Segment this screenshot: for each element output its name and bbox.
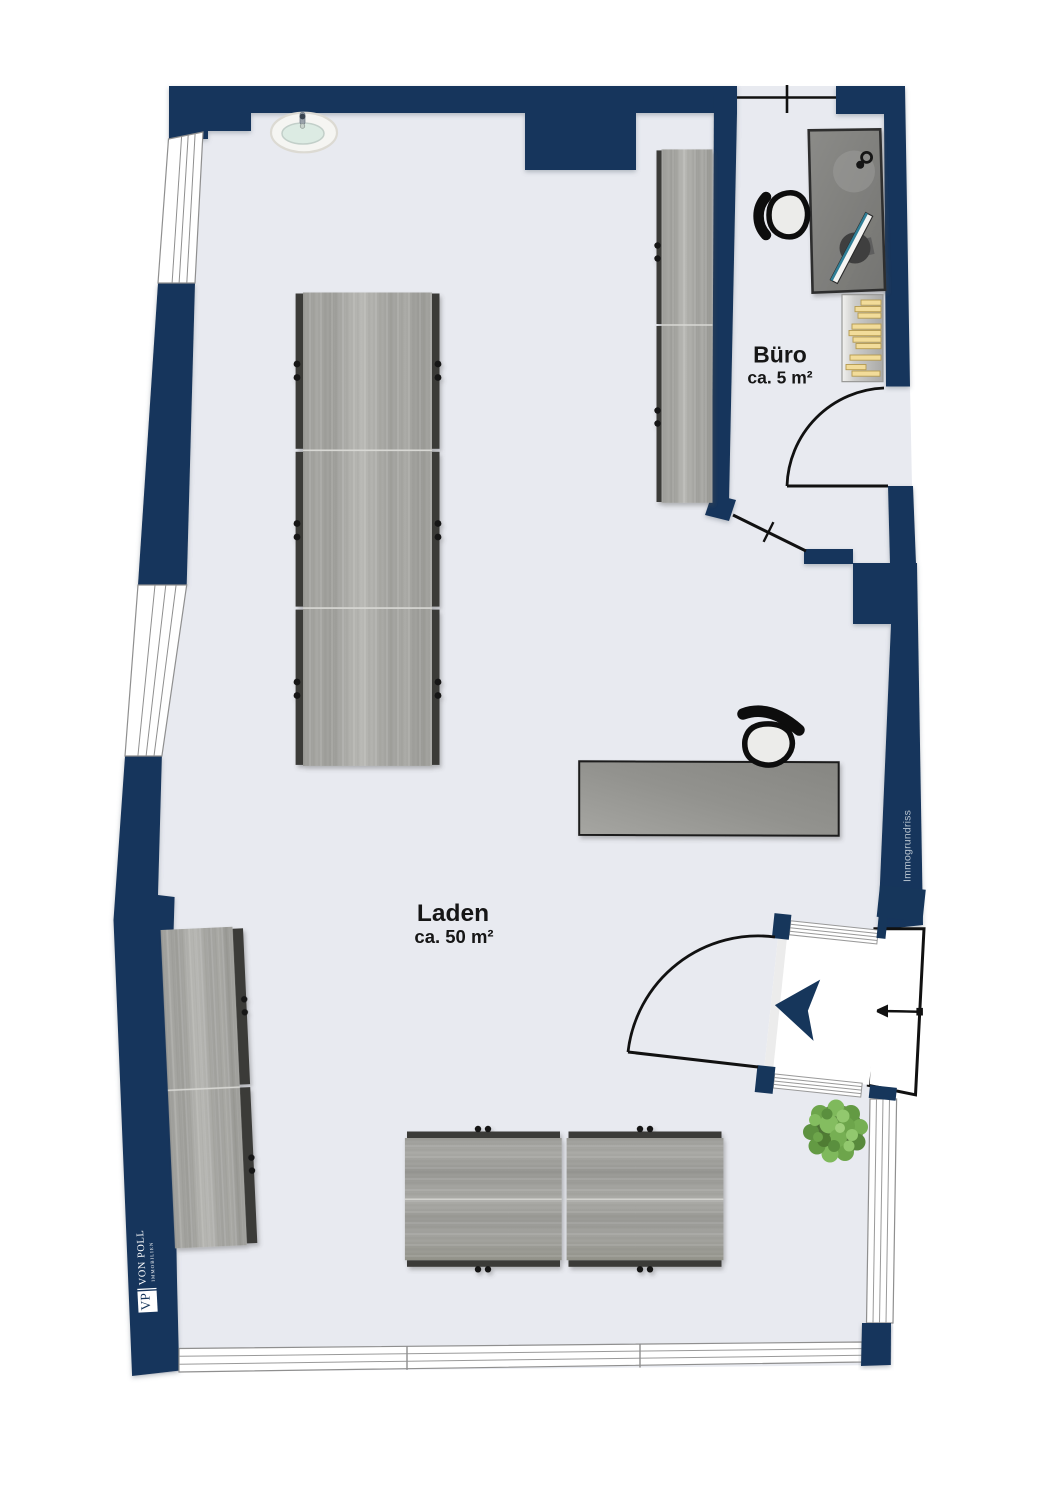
svg-text:Laden: Laden xyxy=(417,900,489,927)
svg-text:Immogrundriss: Immogrundriss xyxy=(902,810,914,882)
svg-text:ca. 50 m²: ca. 50 m² xyxy=(414,926,493,947)
svg-text:ca. 5 m²: ca. 5 m² xyxy=(747,368,812,388)
svg-text:VP: VP xyxy=(137,1293,153,1311)
svg-text:Büro: Büro xyxy=(753,342,807,368)
